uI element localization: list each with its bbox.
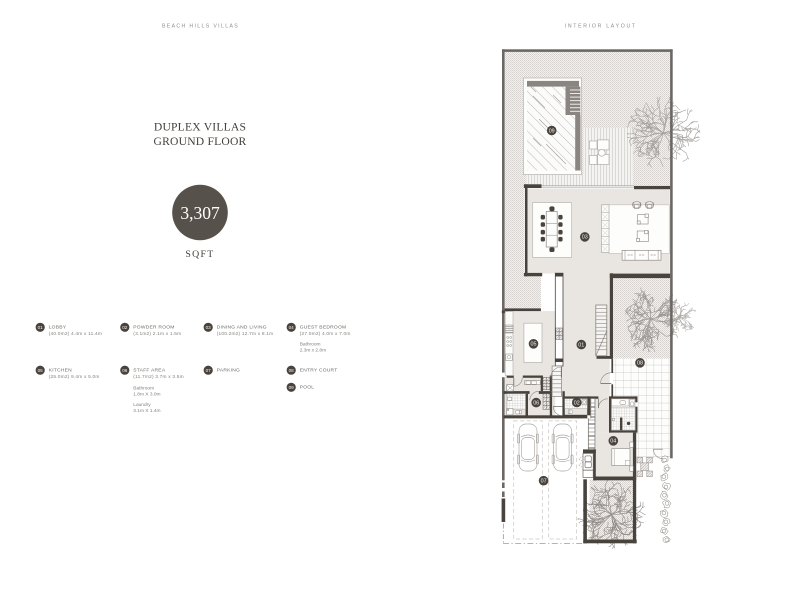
svg-text:(27.0m2) 4.0m x 7.0m: (27.0m2) 4.0m x 7.0m <box>300 331 351 337</box>
svg-text:(25.0m2) 9.4m x 5.0m: (25.0m2) 9.4m x 5.0m <box>49 374 100 380</box>
svg-text:(11.7m2) 3.7m x 3.5m: (11.7m2) 3.7m x 3.5m <box>133 374 184 380</box>
svg-text:03: 03 <box>582 235 588 241</box>
svg-text:04: 04 <box>289 325 295 330</box>
svg-text:05: 05 <box>38 368 44 373</box>
svg-text:09: 09 <box>549 128 555 134</box>
svg-text:SQFT: SQFT <box>185 249 214 260</box>
svg-text:ENTRY COURT: ENTRY COURT <box>300 367 338 373</box>
svg-text:08: 08 <box>289 368 295 373</box>
svg-text:08: 08 <box>637 361 643 367</box>
svg-text:3.1m X 1.4m: 3.1m X 1.4m <box>133 408 160 414</box>
svg-text:INTERIOR LAYOUT: INTERIOR LAYOUT <box>565 24 637 30</box>
svg-text:07: 07 <box>206 368 212 373</box>
svg-text:BEACH HILLS VILLAS: BEACH HILLS VILLAS <box>162 24 239 30</box>
svg-text:GROUND FLOOR: GROUND FLOOR <box>154 135 247 148</box>
svg-text:(40.0m2) 4.4m x 11.4m: (40.0m2) 4.4m x 11.4m <box>49 331 102 337</box>
svg-text:Laundry: Laundry <box>133 402 151 408</box>
svg-text:LOBBY: LOBBY <box>49 325 67 331</box>
svg-text:DUPLEX VILLAS: DUPLEX VILLAS <box>154 121 246 134</box>
svg-text:POWDER ROOM: POWDER ROOM <box>133 325 174 331</box>
svg-text:Bathroom: Bathroom <box>300 342 321 348</box>
svg-text:(3.1m2) 2.1m x 1.5m: (3.1m2) 2.1m x 1.5m <box>133 331 181 337</box>
svg-text:(100.2m2) 12.7m x 8.1m: (100.2m2) 12.7m x 8.1m <box>217 331 274 337</box>
svg-text:POOL: POOL <box>300 385 315 391</box>
svg-text:PARKING: PARKING <box>217 367 240 373</box>
svg-text:Bathroom: Bathroom <box>133 386 154 392</box>
svg-text:06: 06 <box>122 368 128 373</box>
svg-text:STAFF AREA: STAFF AREA <box>133 367 166 373</box>
svg-text:KITCHEN: KITCHEN <box>49 367 72 373</box>
svg-text:GUEST BEDROOM: GUEST BEDROOM <box>300 325 347 331</box>
svg-text:01: 01 <box>578 342 584 348</box>
svg-text:02: 02 <box>122 325 128 330</box>
svg-text:06: 06 <box>533 400 539 406</box>
svg-text:02: 02 <box>574 400 580 406</box>
svg-text:3,307: 3,307 <box>180 203 220 223</box>
svg-text:01: 01 <box>38 325 44 330</box>
svg-text:DINING AND LIVING: DINING AND LIVING <box>217 325 267 331</box>
svg-text:07: 07 <box>541 479 547 485</box>
svg-text:09: 09 <box>289 385 295 390</box>
svg-text:1.8m X 3.0m: 1.8m X 3.0m <box>133 391 160 397</box>
svg-text:05: 05 <box>531 342 537 348</box>
svg-text:2.3m x 2.8m: 2.3m x 2.8m <box>300 347 326 353</box>
svg-text:04: 04 <box>610 439 616 445</box>
svg-text:03: 03 <box>206 325 212 330</box>
